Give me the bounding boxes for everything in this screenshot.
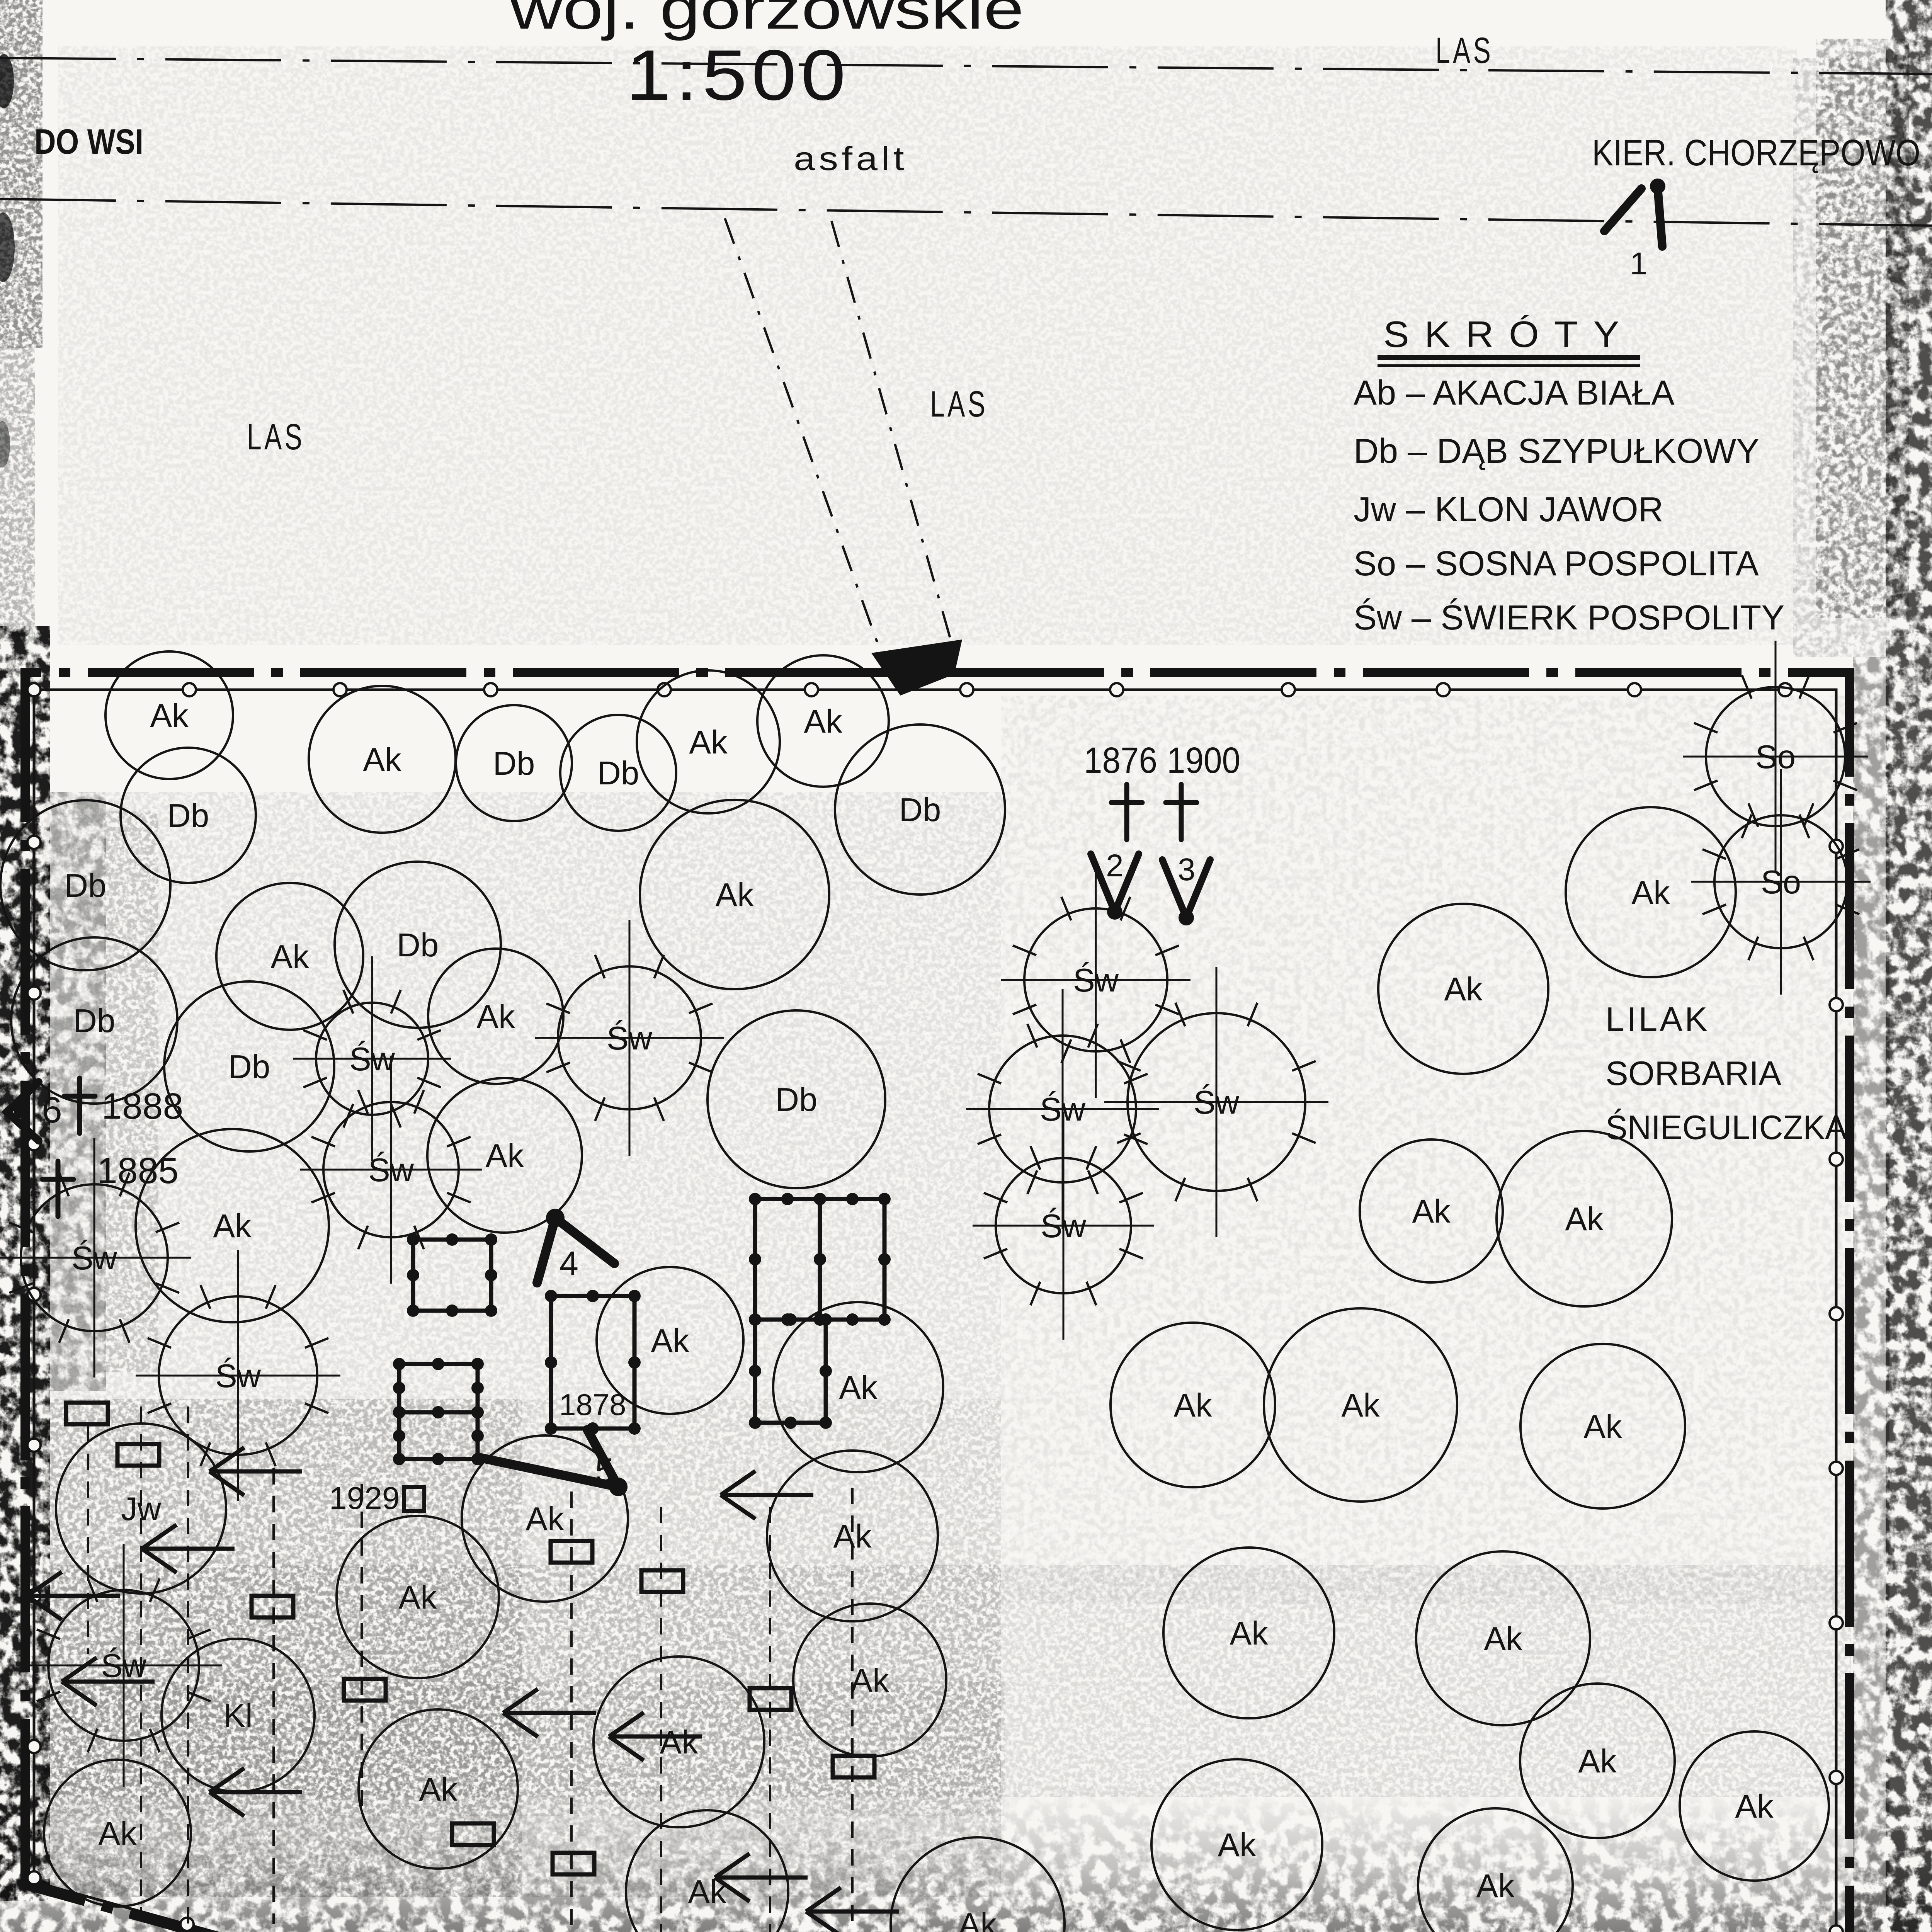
svg-text:Ak: Ak <box>419 1771 457 1808</box>
svg-text:Ak: Ak <box>850 1662 889 1699</box>
svg-text:Db: Db <box>228 1049 270 1085</box>
svg-text:1885: 1885 <box>97 1150 179 1191</box>
svg-text:Ak: Ak <box>839 1369 878 1406</box>
svg-text:Ak: Ak <box>270 939 309 975</box>
svg-text:Św – ŚWIERK POSPOLITY: Św – ŚWIERK POSPOLITY <box>1354 598 1784 637</box>
svg-text:Db: Db <box>167 798 209 834</box>
svg-text:1878: 1878 <box>559 1388 626 1422</box>
svg-text:Db – DĄB SZYPUŁKOWY: Db – DĄB SZYPUŁKOWY <box>1354 432 1759 471</box>
svg-text:3: 3 <box>1178 852 1196 887</box>
svg-text:LAS: LAS <box>930 384 988 425</box>
svg-text:Ak: Ak <box>1476 1868 1515 1905</box>
svg-text:Ak: Ak <box>1565 1201 1604 1238</box>
svg-text:4: 4 <box>560 1244 578 1282</box>
svg-text:Jw: Jw <box>121 1491 162 1527</box>
svg-text:Ak: Ak <box>651 1323 689 1359</box>
svg-text:Św: Św <box>1041 1207 1087 1245</box>
svg-text:Db: Db <box>776 1082 818 1118</box>
svg-text:6: 6 <box>42 1090 62 1131</box>
svg-text:1888: 1888 <box>102 1086 183 1127</box>
svg-text:So – SOSNA POSPOLITA: So – SOSNA POSPOLITA <box>1354 544 1759 583</box>
svg-text:Św: Św <box>71 1240 117 1277</box>
svg-text:1929: 1929 <box>329 1481 400 1516</box>
svg-text:LILAK: LILAK <box>1605 1000 1710 1038</box>
svg-text:LAS: LAS <box>1930 1194 1932 1235</box>
svg-text:So: So <box>1755 739 1796 776</box>
svg-text:KIER. CHORZĘPOWO: KIER. CHORZĘPOWO <box>1592 132 1920 173</box>
svg-text:SORBARIA: SORBARIA <box>1605 1054 1781 1092</box>
svg-text:Św: Św <box>215 1357 261 1395</box>
svg-text:Db: Db <box>65 867 107 904</box>
svg-text:Ak: Ak <box>98 1815 137 1852</box>
svg-text:Ak: Ak <box>1341 1387 1380 1424</box>
svg-text:Ak: Ak <box>485 1138 524 1174</box>
svg-text:Ab – AKACJA BIAŁA: Ab – AKACJA BIAŁA <box>1354 374 1674 412</box>
svg-text:Ak: Ak <box>689 724 728 761</box>
svg-text:Ak: Ak <box>1578 1743 1617 1780</box>
svg-text:Ak: Ak <box>1631 874 1670 911</box>
svg-text:Św: Św <box>607 1020 653 1057</box>
svg-text:Ak: Ak <box>398 1579 437 1616</box>
svg-text:1:500: 1:500 <box>626 36 850 115</box>
svg-text:Ak: Ak <box>1444 971 1483 1008</box>
svg-text:LAS: LAS <box>1435 30 1493 71</box>
svg-text:DO WSI: DO WSI <box>34 122 143 162</box>
svg-text:Db: Db <box>493 745 535 782</box>
svg-text:5: 5 <box>595 1451 614 1489</box>
svg-text:woj. gorzowskie: woj. gorzowskie <box>510 0 1024 41</box>
svg-text:LAS: LAS <box>247 417 305 457</box>
svg-text:Ak: Ak <box>958 1906 997 1932</box>
svg-text:Św: Św <box>368 1151 414 1189</box>
svg-text:Ak: Ak <box>1412 1193 1451 1230</box>
svg-text:Jw – KLON JAWOR: Jw – KLON JAWOR <box>1354 490 1663 529</box>
svg-text:Ak: Ak <box>833 1518 872 1555</box>
svg-text:Ak: Ak <box>715 877 754 913</box>
svg-text:Ak: Ak <box>526 1501 564 1537</box>
svg-text:SKRÓTY: SKRÓTY <box>1383 314 1634 355</box>
svg-text:Ak: Ak <box>688 1874 726 1910</box>
svg-text:1876: 1876 <box>1084 740 1157 781</box>
svg-text:Ak: Ak <box>1583 1408 1622 1445</box>
svg-text:2: 2 <box>1106 848 1124 883</box>
svg-text:asfalt: asfalt <box>794 140 908 177</box>
svg-text:Ak: Ak <box>660 1724 698 1761</box>
svg-text:Ak: Ak <box>363 742 401 778</box>
svg-text:Db: Db <box>397 927 439 964</box>
svg-text:Ak: Ak <box>1230 1615 1268 1652</box>
svg-text:ŚNIEGULICZKA: ŚNIEGULICZKA <box>1605 1108 1847 1146</box>
svg-text:So: So <box>1761 864 1801 901</box>
svg-text:Św: Św <box>1194 1084 1240 1121</box>
svg-text:Ak: Ak <box>1735 1788 1774 1825</box>
svg-text:Db: Db <box>597 755 639 792</box>
svg-text:Ak: Ak <box>1484 1621 1522 1657</box>
svg-text:Św: Św <box>1073 962 1119 999</box>
svg-text:Ak: Ak <box>150 697 189 734</box>
svg-text:Db: Db <box>73 1003 116 1039</box>
svg-text:Św: Św <box>349 1041 395 1078</box>
svg-text:Ak: Ak <box>213 1208 252 1245</box>
svg-text:Ak: Ak <box>476 998 515 1035</box>
svg-text:Db: Db <box>899 792 941 828</box>
svg-text:Kl: Kl <box>223 1697 253 1734</box>
svg-text:1: 1 <box>1630 246 1648 281</box>
svg-text:Ak: Ak <box>804 703 842 740</box>
svg-text:KONWALIA: KONWALIA <box>1589 1925 1763 1932</box>
svg-text:Św: Św <box>101 1647 147 1684</box>
svg-text:Ak: Ak <box>1173 1387 1212 1424</box>
svg-text:Ak: Ak <box>1218 1827 1256 1864</box>
svg-text:1900: 1900 <box>1167 740 1240 781</box>
